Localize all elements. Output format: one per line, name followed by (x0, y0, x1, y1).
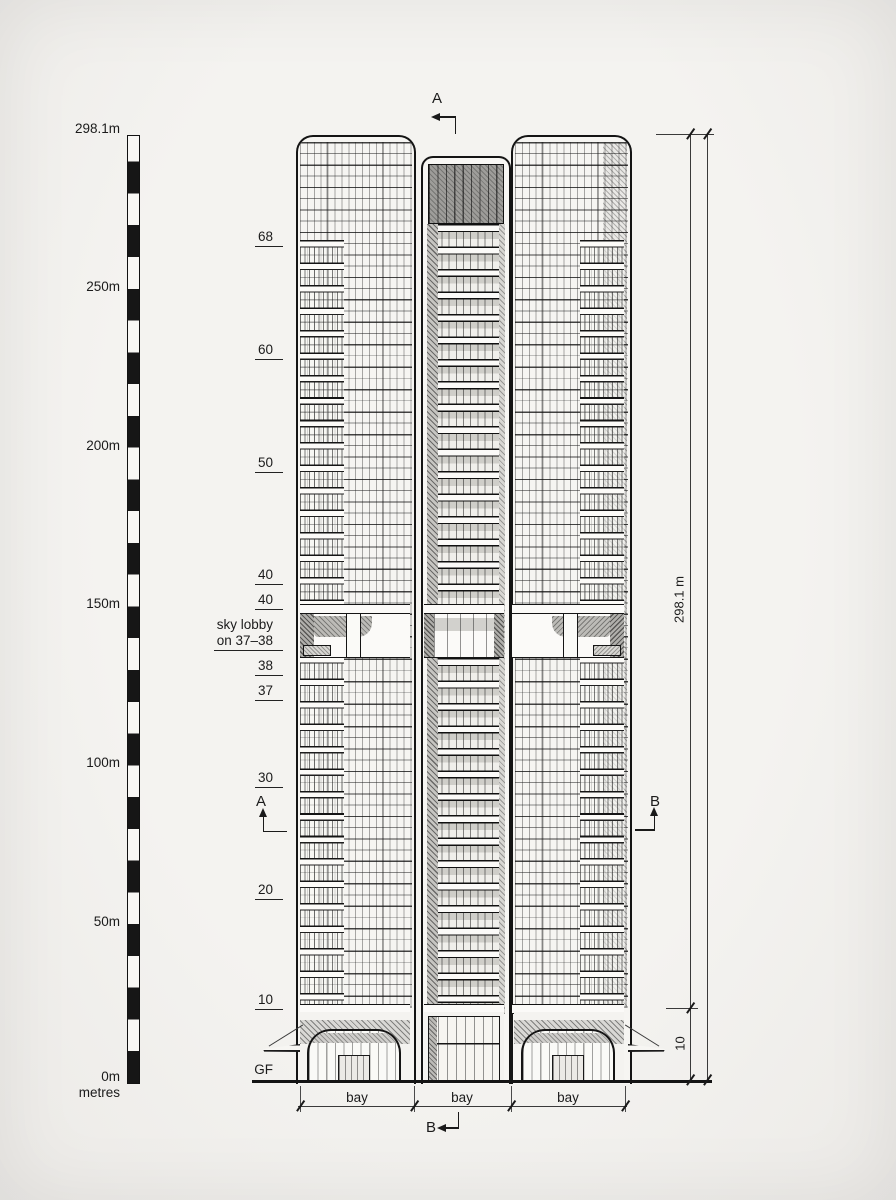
scale-label-250: 250m (28, 279, 120, 295)
floor-label-40b: 40 (153, 592, 283, 610)
scale-label-0: 0m (28, 1069, 120, 1085)
scale-label-50: 50m (28, 914, 120, 930)
hatch-panel (314, 616, 372, 637)
floor-label-60: 60 (153, 342, 283, 360)
section-arrow-line (458, 1112, 460, 1129)
bay-label-2: bay (432, 1090, 492, 1105)
sky-lobby-center (424, 613, 504, 658)
scale-label-200: 200m (28, 438, 120, 454)
floor-label-20: 20 (153, 882, 283, 900)
section-marker-a-top: A (424, 90, 450, 107)
ground-line (252, 1080, 712, 1083)
height-dimension-inner (690, 135, 691, 1081)
sky-lobby-left (300, 613, 410, 658)
hatch-box (303, 645, 331, 656)
bay-dimension-line (298, 1106, 627, 1107)
section-arrow-line (263, 831, 287, 833)
section-arrow-line (654, 815, 656, 830)
scale-label-150: 150m (28, 596, 120, 612)
arrow-left-icon (437, 1124, 446, 1132)
left-tower-balconies-lower (300, 656, 344, 1004)
left-tower-balconies-upper (300, 240, 344, 604)
floor-label-40a: 40 (153, 567, 283, 585)
center-crown-panel (428, 164, 504, 224)
floor-label-gf: GF (153, 1062, 283, 1078)
floor-label-68: 68 (153, 229, 283, 247)
lobby-column-hatch (429, 1017, 437, 1082)
dimension-line-podium (666, 1008, 698, 1009)
total-height-label: 298.1 m (672, 558, 687, 642)
bay-label-1: bay (327, 1090, 387, 1105)
scale-label-100: 100m (28, 755, 120, 771)
arrow-left-icon (431, 113, 440, 121)
bay-label-3: bay (538, 1090, 598, 1105)
extension-line (414, 1086, 415, 1112)
arrow-up-icon (259, 808, 267, 817)
scale-label-298: 298.1m (28, 121, 120, 137)
right-tower-balconies-upper (580, 240, 624, 604)
hatch-panel (552, 616, 610, 637)
entrance-arch-right (521, 1029, 615, 1082)
height-dimension-outer (707, 135, 708, 1081)
sky-lobby-label: sky lobby on 37–38 (153, 617, 283, 651)
entrance-door (338, 1055, 370, 1082)
scale-bar (127, 135, 140, 1084)
floor-label-10: 10 (153, 992, 283, 1010)
center-base (424, 1012, 504, 1082)
column (563, 614, 578, 657)
section-arrow-line (635, 829, 655, 831)
hatch-box (593, 645, 621, 656)
center-facade-upper (427, 224, 505, 606)
extension-line (625, 1086, 626, 1112)
entrance-arch-left (307, 1029, 401, 1082)
podium-height-label: 10 (673, 1028, 688, 1060)
right-tower-balconies-lower (580, 656, 624, 1004)
glazing-mullions (434, 614, 494, 657)
arch-hatch (309, 1033, 399, 1043)
left-tower-base (300, 1012, 410, 1082)
drawing-sheet: 298.1m 250m 200m 150m 100m 50m 0m metres (0, 0, 896, 1200)
arrow-up-icon (650, 807, 658, 816)
column (346, 614, 361, 657)
floor-label-37: 37 (153, 683, 283, 701)
section-arrow-line (455, 116, 457, 134)
hatch-panel (494, 614, 504, 657)
extension-line (511, 1086, 512, 1112)
scale-unit-label: metres (28, 1085, 120, 1101)
hatch-panel (424, 614, 434, 657)
extension-line (300, 1086, 301, 1112)
center-facade-lower (427, 658, 505, 1014)
lobby-glazing (428, 1016, 500, 1082)
floor-label-38: 38 (153, 658, 283, 676)
sky-lobby-right (512, 613, 624, 658)
floor-label-30: 30 (153, 770, 283, 788)
entrance-door (552, 1055, 584, 1082)
floor-label-50: 50 (153, 455, 283, 473)
right-tower-base (514, 1012, 624, 1082)
arch-hatch (523, 1033, 613, 1043)
